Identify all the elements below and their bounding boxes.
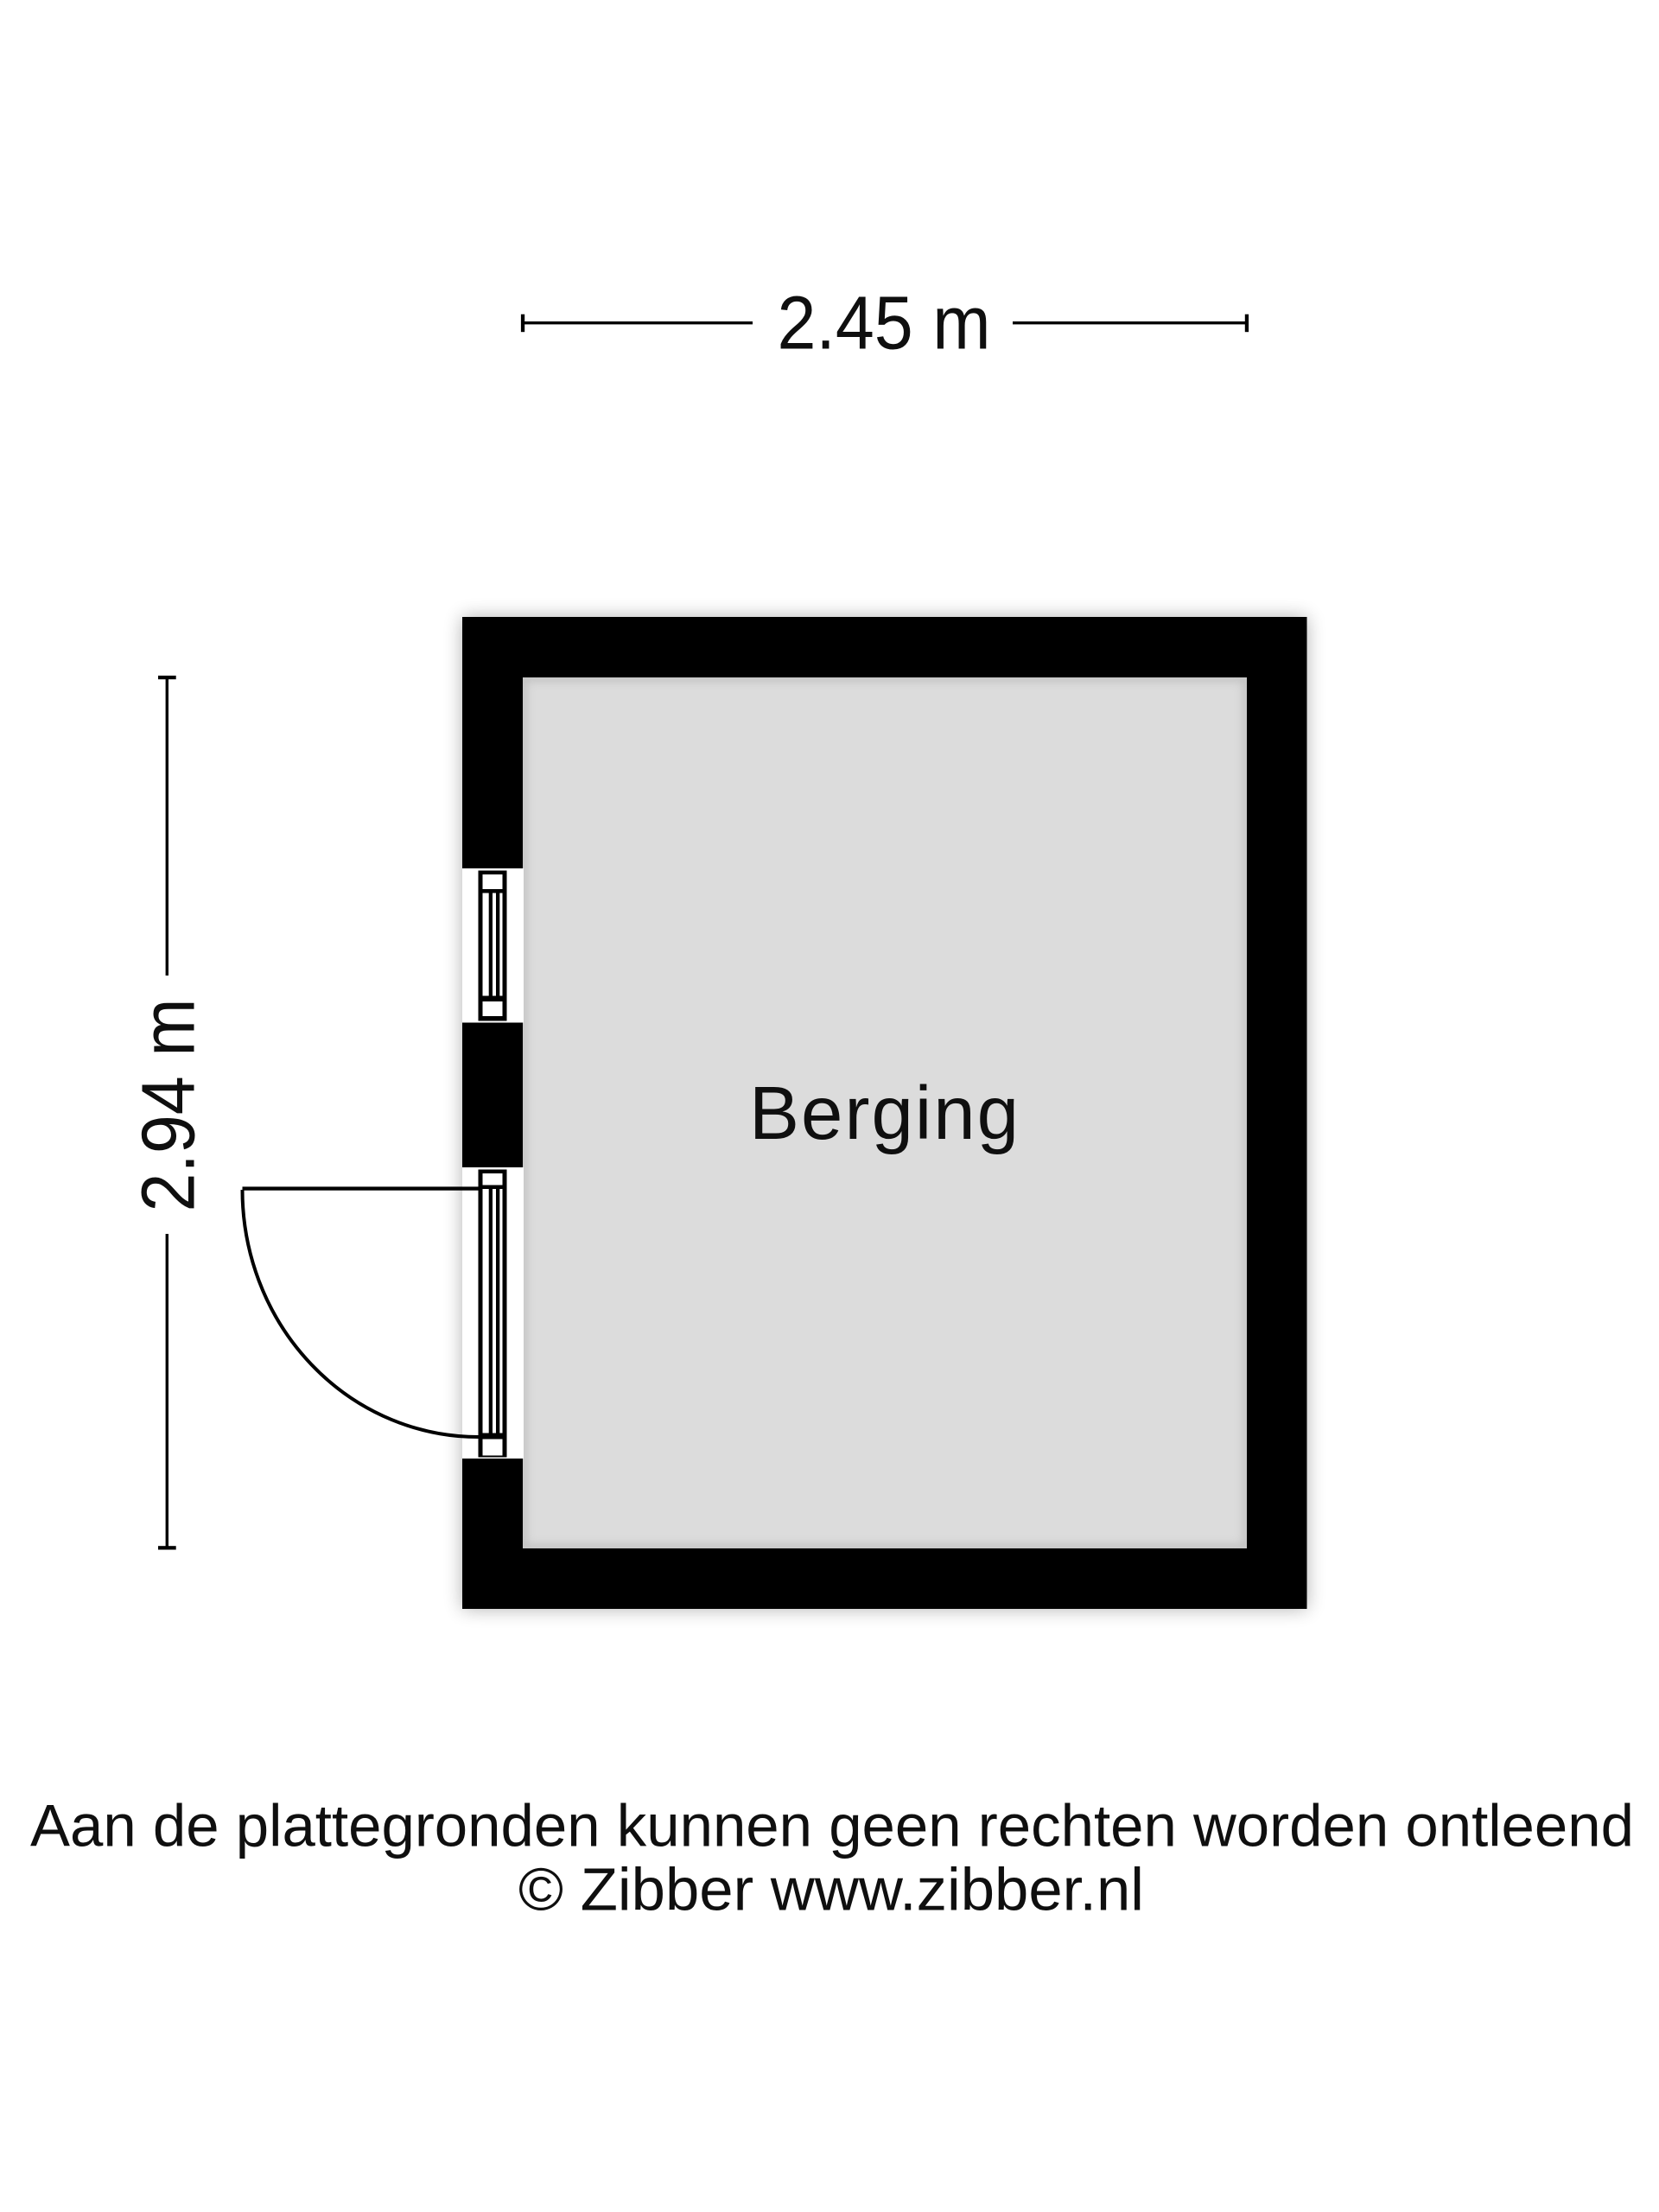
svg-text:Berging: Berging [749, 1071, 1019, 1155]
svg-text:Aan de plattegronden kunnen ge: Aan de plattegronden kunnen geen rechten… [30, 1793, 1634, 1859]
svg-text:2.45 m: 2.45 m [778, 281, 991, 365]
svg-text:2.94 m: 2.94 m [127, 999, 211, 1212]
svg-text:© Zibber www.zibber.nl: © Zibber www.zibber.nl [518, 1855, 1144, 1923]
